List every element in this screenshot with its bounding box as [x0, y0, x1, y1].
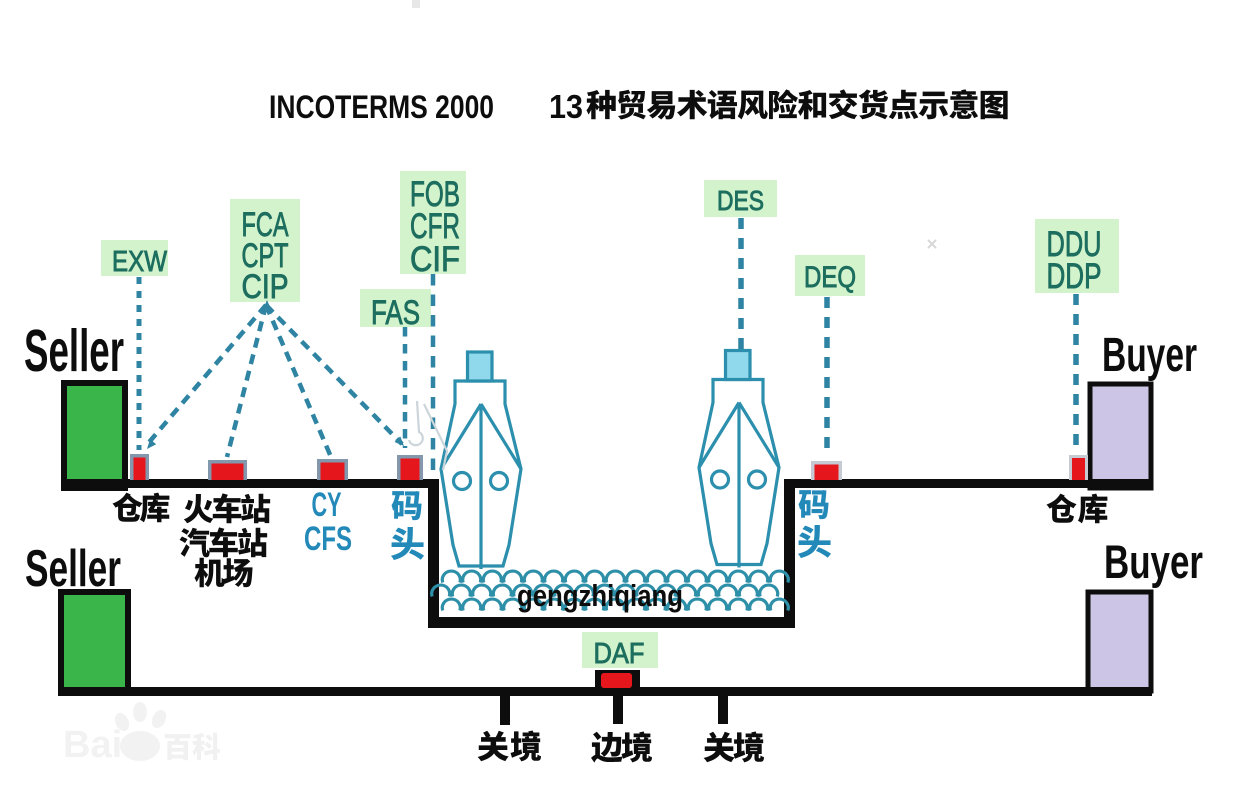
svg-text:DDP: DDP [1047, 257, 1102, 296]
svg-text:Buyer: Buyer [1104, 535, 1203, 588]
svg-text:INCOTERMS 2000: INCOTERMS 2000 [269, 89, 494, 125]
svg-text:CIF: CIF [410, 240, 460, 279]
svg-text:FAS: FAS [371, 294, 420, 332]
svg-text:EXW: EXW [112, 246, 168, 278]
svg-text:CFS: CFS [304, 520, 352, 558]
svg-text:Seller: Seller [24, 318, 124, 384]
svg-text:CY: CY [312, 486, 342, 524]
svg-text:gengzhiqiang: gengzhiqiang [517, 578, 683, 613]
svg-text:13: 13 [549, 88, 583, 125]
svg-text:CIP: CIP [242, 268, 289, 306]
svg-text:DES: DES [717, 185, 764, 216]
svg-text:DAF: DAF [594, 638, 645, 670]
svg-text:DEQ: DEQ [804, 261, 856, 294]
svg-text:Bai: Bai [63, 724, 122, 766]
svg-text:Buyer: Buyer [1102, 329, 1197, 382]
